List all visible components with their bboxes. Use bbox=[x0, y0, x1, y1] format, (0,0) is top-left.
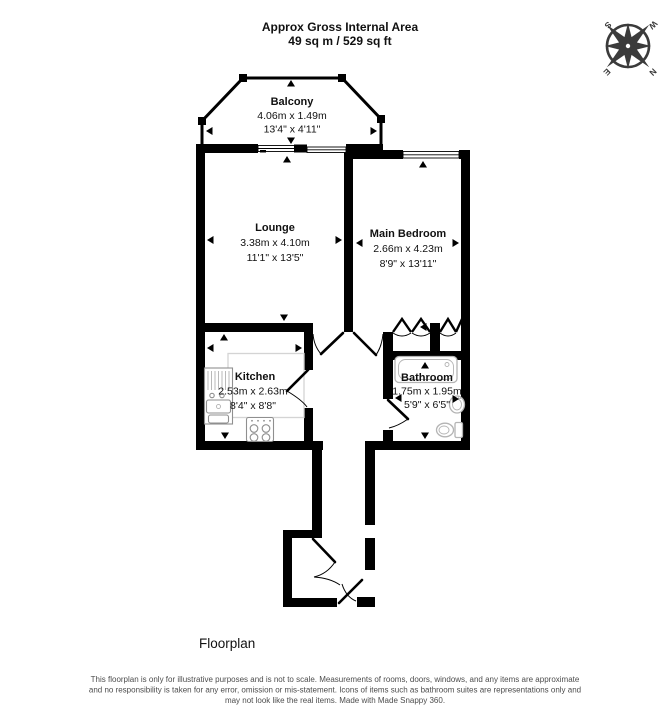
bedroom-window bbox=[403, 152, 459, 159]
disclaimer-line-3: may not look like the real items. Made w… bbox=[225, 696, 445, 705]
kitchen-metric: 2.53m x 2.63m bbox=[218, 386, 288, 398]
balcony-sliding-door bbox=[258, 145, 346, 153]
lounge-name: Lounge bbox=[255, 222, 295, 234]
kitchen-arrow-right bbox=[296, 344, 303, 352]
bedroom-arrow-up bbox=[419, 161, 427, 168]
compass-east-label: E bbox=[601, 67, 612, 78]
kitchen-arrow-left bbox=[207, 344, 214, 352]
lounge-arrow-left bbox=[207, 236, 214, 244]
lounge-label: Lounge 3.38m x 4.10m 11'1" x 13'5" bbox=[240, 222, 310, 264]
compass-west-label: W bbox=[646, 19, 659, 32]
main-bedroom-label: Main Bedroom 2.66m x 4.23m 8'9" x 13'11" bbox=[370, 228, 447, 270]
bathroom-arrow-down bbox=[421, 433, 429, 440]
balcony-imperial: 13'4" x 4'11" bbox=[264, 124, 321, 136]
kitchen-name: Kitchen bbox=[235, 371, 276, 383]
main-bedroom-name: Main Bedroom bbox=[370, 228, 447, 240]
kitchen-arrow-up bbox=[220, 334, 228, 341]
bathroom-metric: 1.75m x 1.95m bbox=[392, 386, 462, 398]
bathroom-imperial: 5'9" x 6'5" bbox=[404, 399, 450, 411]
kitchen-arrow-down bbox=[221, 433, 229, 440]
toilet bbox=[437, 423, 463, 438]
balcony-arrow-down bbox=[287, 138, 295, 145]
lounge-imperial: 11'1" x 13'5" bbox=[247, 252, 304, 264]
disclaimer: This floorplan is only for illustrative … bbox=[89, 675, 581, 705]
kitchen-door bbox=[287, 370, 308, 407]
balcony-label: Balcony 4.06m x 1.49m 13'4" x 4'11" bbox=[257, 96, 327, 136]
compass-rose-icon: S W E N bbox=[601, 19, 659, 78]
kitchen-hob bbox=[247, 418, 274, 442]
header-area-value: 49 sq m / 529 sq ft bbox=[288, 34, 391, 48]
bedroom-door bbox=[354, 333, 383, 355]
kitchen-imperial: 8'4" x 8'8" bbox=[230, 400, 276, 412]
lounge-arrow-right bbox=[336, 236, 343, 244]
header-title: Approx Gross Internal Area bbox=[262, 20, 419, 34]
balcony-arrow-up bbox=[287, 80, 295, 87]
floorplan-page: Approx Gross Internal Area 49 sq m / 529… bbox=[0, 0, 670, 721]
lounge-arrow-up bbox=[283, 156, 291, 163]
lounge-metric: 3.38m x 4.10m bbox=[240, 237, 310, 249]
lounge-arrow-down bbox=[280, 315, 288, 322]
compass-south-label: S bbox=[602, 20, 613, 31]
balcony-name: Balcony bbox=[271, 96, 315, 108]
balcony-arrow-right bbox=[371, 127, 378, 135]
main-bedroom-imperial: 8'9" x 13'11" bbox=[380, 258, 437, 270]
balcony-metric: 4.06m x 1.49m bbox=[257, 110, 327, 122]
disclaimer-line-2: and no responsibility is taken for any e… bbox=[89, 686, 581, 695]
bedroom-arrow-left bbox=[356, 239, 363, 247]
main-bedroom-metric: 2.66m x 4.23m bbox=[373, 243, 443, 255]
bedroom-arrow-right bbox=[453, 239, 460, 247]
balcony-arrow-left bbox=[206, 127, 213, 135]
bathroom-name: Bathroom bbox=[401, 372, 453, 384]
hall-door bbox=[313, 539, 340, 585]
disclaimer-line-1: This floorplan is only for illustrative … bbox=[91, 675, 580, 684]
lounge-door bbox=[313, 333, 343, 354]
compass-north-label: N bbox=[647, 66, 658, 77]
floorplan-canvas: Approx Gross Internal Area 49 sq m / 529… bbox=[0, 0, 670, 721]
floorplan-caption: Floorplan bbox=[199, 636, 255, 651]
